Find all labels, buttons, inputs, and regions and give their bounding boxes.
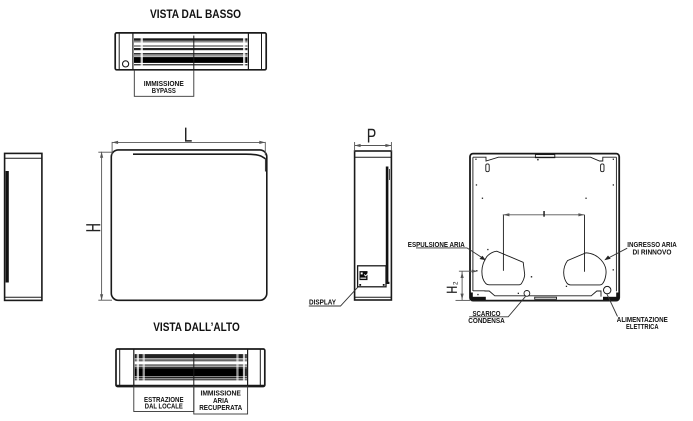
svg-text:VISTA DALL’ALTO: VISTA DALL’ALTO [153,322,240,334]
svg-text:ELETTRICA: ELETTRICA [626,324,659,331]
svg-text:RECUPERATA: RECUPERATA [199,405,242,412]
svg-text:VISTA DAL BASSO: VISTA DAL BASSO [150,9,241,21]
svg-text:2: 2 [452,281,459,285]
svg-text:IMMISSIONE: IMMISSIONE [200,391,241,398]
svg-text:DISPLAY: DISPLAY [309,300,336,307]
svg-text:IMMISSIONE: IMMISSIONE [144,81,184,88]
svg-text:DI RINNOVO: DI RINNOVO [633,250,673,257]
svg-text:INGRESSO ARIA: INGRESSO ARIA [627,242,677,249]
svg-text:DAL LOCALE: DAL LOCALE [145,404,183,411]
svg-text:CONDENSA: CONDENSA [468,318,505,325]
svg-text:ARIA: ARIA [213,398,229,405]
svg-text:BYPASS: BYPASS [152,88,176,95]
